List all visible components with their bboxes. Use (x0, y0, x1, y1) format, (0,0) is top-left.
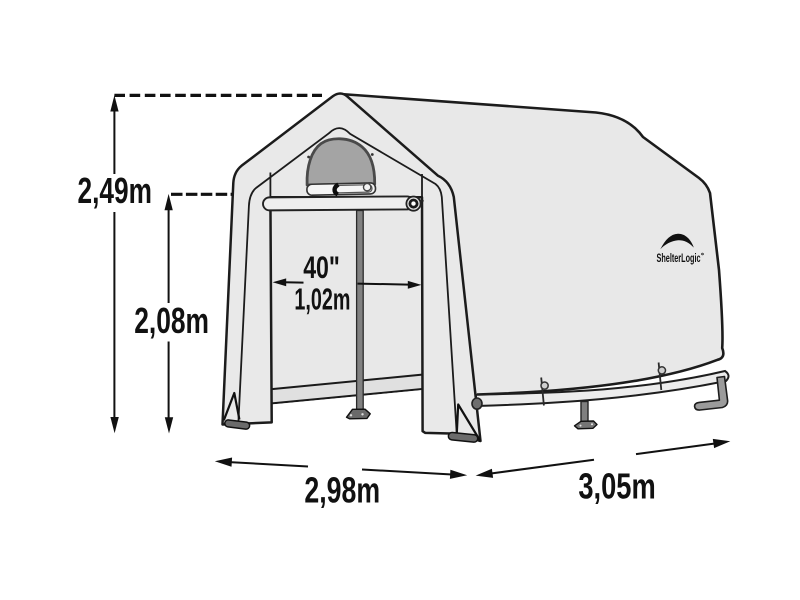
svg-text:3,05m: 3,05m (578, 466, 655, 507)
svg-text:1,02m: 1,02m (294, 282, 350, 317)
svg-text:ShelterLogic: ShelterLogic (657, 251, 701, 265)
svg-text:2,98m: 2,98m (304, 469, 380, 510)
svg-text:2,49m: 2,49m (78, 170, 152, 211)
svg-text:40": 40" (303, 249, 340, 285)
svg-text:2,08m: 2,08m (134, 300, 209, 341)
